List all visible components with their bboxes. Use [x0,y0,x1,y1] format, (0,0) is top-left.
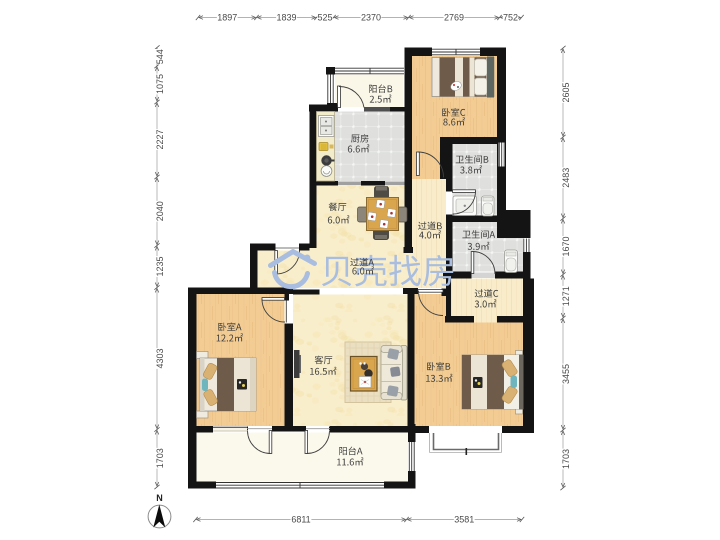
svg-text:1703: 1703 [155,448,165,468]
svg-text:3455: 3455 [561,364,571,384]
svg-text:2227: 2227 [155,129,165,149]
svg-text:2769: 2769 [444,13,464,23]
svg-text:1897: 1897 [217,13,237,23]
svg-text:1839: 1839 [276,13,296,23]
svg-text:1703: 1703 [561,449,571,469]
svg-text:525: 525 [317,13,332,23]
svg-text:2483: 2483 [561,168,571,188]
svg-text:2040: 2040 [155,201,165,221]
svg-text:1075: 1075 [155,74,165,94]
svg-text:1271: 1271 [561,286,571,306]
svg-text:752: 752 [503,13,518,23]
svg-text:4303: 4303 [155,348,165,368]
svg-text:6811: 6811 [291,515,310,525]
svg-text:N: N [156,493,163,503]
svg-text:1235: 1235 [155,256,165,276]
svg-text:544: 544 [155,49,165,64]
svg-text:1670: 1670 [561,236,571,256]
svg-text:2370: 2370 [361,13,381,23]
svg-text:3581: 3581 [454,515,474,525]
svg-text:2605: 2605 [561,82,571,102]
